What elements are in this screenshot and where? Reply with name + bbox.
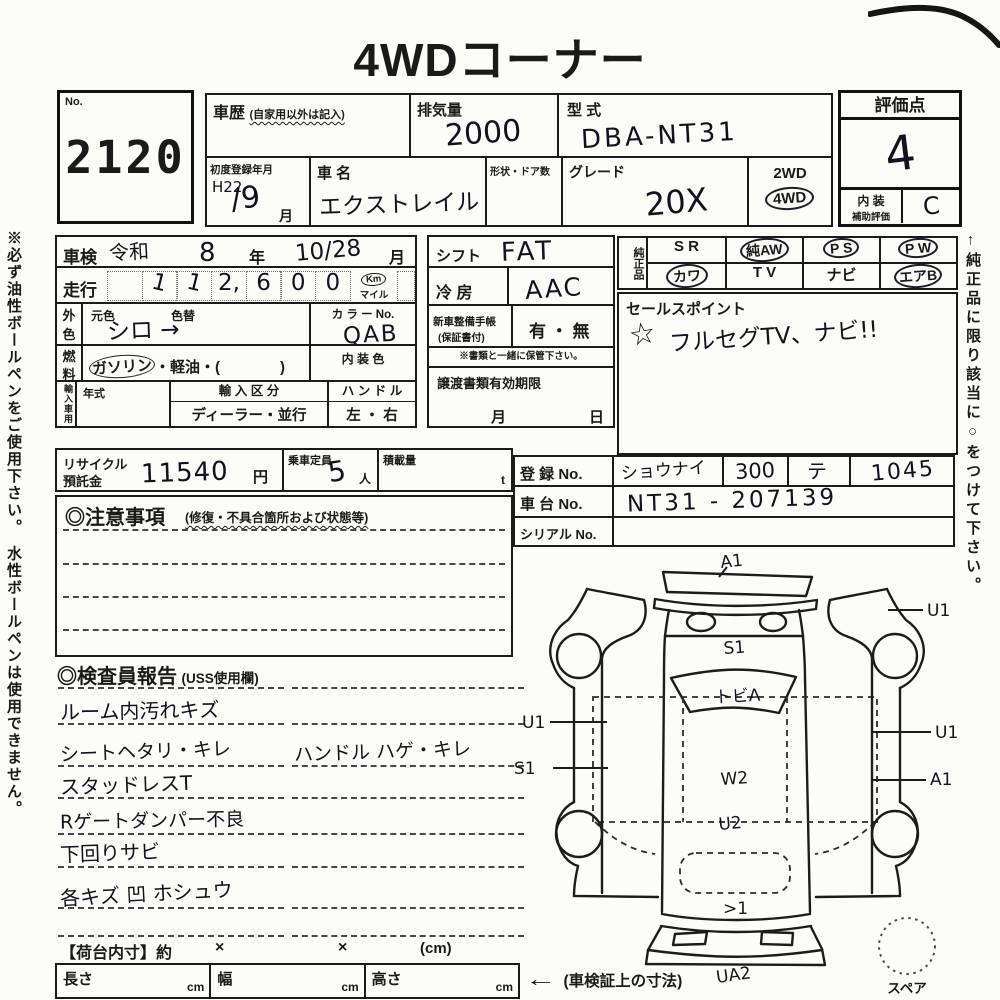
registration-row: 登 録 No. ショウナイ 300 テ 1045 [515, 457, 953, 487]
corner-scan-mark [868, 0, 1000, 52]
inspector-report-header: ◎検査員報告 (USS使用欄) [57, 660, 259, 689]
dims-table: 長さ cm 幅 cm 高さ cm [55, 963, 520, 999]
warranty-note: ※書類と一緒に保管下さい。 [429, 348, 613, 366]
fuel-label: 燃料 [57, 346, 83, 380]
transfer-box: 譲渡書類有効期限 月 日 [427, 366, 615, 428]
ac-label: 冷 房 [436, 279, 472, 303]
vehicle-history-cell: 車歴 (自家用以外は記入) [205, 93, 411, 158]
diagram-label-roof: W2 [720, 768, 749, 790]
spare-tire-circle [879, 918, 935, 974]
shift-label: シフト [436, 245, 481, 266]
seats-unit: 人 [359, 470, 371, 487]
mileage-digit: 0 [326, 272, 341, 295]
transfer-month: 月 [491, 406, 506, 427]
inspector-line [292, 909, 524, 937]
shaken-year-unit: 年 [249, 244, 265, 268]
diagram-label-left-door-lower: S1 [514, 759, 536, 779]
grade-cell: グレード 20X [561, 156, 749, 227]
inspector-left-column: ルーム内汚れキズ シートヘタリ・キレ スタッドレスT Rゲートダンパー不良 下回… [58, 687, 284, 937]
color-no-cell: カ ラ ー No. QAB [309, 304, 415, 344]
vehicle-history-label: 車歴 [213, 99, 245, 123]
left-margin-note: ※必ず油性ボールペンをご使用下さい。 水性ボールペンは使用できません。 [3, 230, 24, 1000]
car-name-cell: 車 名 エクストレイル [309, 156, 487, 227]
warranty-value: 有 ・ 無 [529, 317, 589, 342]
roof-dashed-outline [593, 697, 877, 893]
year-model-label: 年式 [83, 385, 105, 401]
shape-doors-label: 形状・ドア数 [490, 163, 550, 178]
import-row: 輸入車用 年式 輸 入 区 分 ディーラー・並行 ハ ン ド ル 左 ・ 右 [55, 380, 417, 428]
inspector-line: スタッドレスT [58, 767, 284, 799]
load-label: 積載量 [383, 452, 416, 468]
mileage-digit: 6 [256, 272, 271, 295]
genuine-item: 純AW [725, 238, 802, 264]
caution-line [63, 529, 505, 531]
length-cell: 長さ cm [57, 965, 209, 997]
shaken-year: 8 [199, 240, 216, 266]
sales-point-box: セールスポイント ☆ フルセグTV、ナビ!! [617, 292, 958, 455]
warranty-note-box: ※書類と一緒に保管下さい。 [427, 346, 615, 368]
fuel-other-options: ・軽油・( ) [155, 359, 285, 376]
evaluation-score: 4 [882, 128, 918, 179]
fuel-gasoline-circled: ガソリン [88, 353, 155, 381]
inspector-subtitle: (USS使用欄) [181, 671, 258, 686]
car-name-label: 車 名 [317, 162, 351, 183]
drive-4wd-circled: 4WD [765, 185, 816, 211]
inspector-line [58, 909, 284, 937]
cautions-subtitle: (修復・不具合箇所および状態等) [185, 507, 368, 526]
mileage-extra-cell [397, 271, 415, 301]
right-margin-note: ←純正品に限り該当に○をつけて下さい。 [962, 233, 983, 673]
vehicle-history-note: (自家用以外は記入) [249, 109, 344, 121]
inspector-line: ルーム内汚れキズ [58, 689, 284, 725]
handle-value: 左 ・ 右 [329, 402, 415, 425]
genuine-item: T V [725, 264, 802, 288]
evaluation-title: 評価点 [841, 93, 959, 120]
color-row: 外色 元色 色替 シロ → カ ラ ー No. QAB [55, 302, 417, 346]
recycle-value: 11540 [141, 458, 230, 487]
right-side-panel [816, 589, 924, 897]
car-name-value: エクストレイル [319, 191, 480, 220]
shaken-date: 10/28 [294, 237, 362, 266]
mileage-unit-mile: マイル [353, 287, 395, 301]
sales-point-star: ☆ [627, 318, 659, 352]
recycle-row: リサイクル 預託金 11540 円 乗車定員 5 人 積載量 t [55, 448, 513, 492]
mileage-units: Km マイル [353, 269, 395, 301]
inspector-title: ◎検査員報告 [57, 666, 177, 688]
recycle-yen-unit: 円 [253, 466, 268, 487]
mileage-digit: 0 [291, 272, 306, 295]
sales-point-value: フルセグTV、ナビ!! [668, 319, 878, 357]
handle-label: ハ ン ド ル [329, 382, 415, 402]
interior-color-cell: 内 装 色 [309, 346, 415, 380]
import-use-label: 輸入車用 [57, 382, 77, 426]
shaken-row: 車検 令和 8 年 10/28 月 [55, 235, 417, 268]
exterior-color-label: 外色 [57, 304, 83, 344]
grade-label: グレード [569, 162, 625, 182]
mileage-row: 走行 1 1 2, 6 0 0 Km マイル [55, 266, 417, 304]
lot-number-box: No. 2120 [57, 90, 194, 224]
interior-grade-label: 内 装 補助評価 [841, 190, 903, 223]
caution-line [63, 629, 505, 631]
genuine-item: エアB [879, 264, 956, 288]
inspector-line: 下回りサビ [58, 835, 284, 868]
cautions-title: ◎注意事項 [65, 501, 165, 530]
warranty-divider [511, 306, 513, 346]
diagram-label-right-fender: U1 [927, 601, 950, 621]
diagram-label-front: A1 [719, 551, 743, 573]
interior-color-label: 内 装 色 [311, 346, 415, 367]
displacement-cell: 排気量 2000 [409, 93, 559, 158]
genuine-item: P S [802, 238, 879, 264]
mileage-digit-cells: 1 1 2, 6 0 0 [107, 271, 351, 301]
shaken-label: 車検 [63, 243, 97, 268]
genuine-item: カワ [648, 264, 725, 288]
warranty-label2: (保証書付) [438, 329, 485, 344]
car-damage-diagram: A1 U1 S1 トビA U1 S1 U1 A1 W2 U2 >1 UA2 スペ… [495, 550, 965, 1000]
diagram-label-right-door-upper: U1 [935, 723, 958, 743]
inspector-line [292, 868, 524, 909]
genuine-parts-grid: 純正品 S R 純AW P S P W カワ T V ナビ エアB [617, 236, 958, 290]
first-registration-month-unit: 月 [279, 206, 293, 226]
mileage-unit-km-circled: Km [361, 272, 387, 287]
drive-2wd-option: 2WD [749, 165, 831, 182]
inspector-line: Rゲートダンパー不良 [58, 799, 284, 835]
first-registration-month: /9 [230, 183, 262, 216]
inspector-line [292, 689, 524, 725]
warranty-box: 新車整備手帳 (保証書付) 有 ・ 無 [427, 304, 615, 348]
chassis-value: NT31 - 207139 [627, 486, 838, 516]
inspector-line [292, 799, 524, 835]
diagram-label-left-door-upper: U1 [522, 713, 545, 733]
reg-class-value: 300 [734, 460, 775, 483]
first-registration-cell: 初度登録年月 H22 /9 月 [205, 156, 311, 227]
grade-value: 20X [644, 183, 709, 220]
first-registration-label: 初度登録年月 [210, 162, 273, 177]
shape-doors-cell: 形状・ドア数 [485, 156, 563, 227]
mileage-digit: 2, [218, 272, 240, 295]
mileage-digit: 1 [184, 271, 204, 297]
color-value: シロ → [107, 319, 180, 345]
import-class-label: 輸 入 区 分 [171, 382, 327, 402]
evaluation-box: 評価点 4 内 装 補助評価 C [838, 90, 962, 227]
spare-tire-label: スペア [887, 981, 927, 996]
diagram-label-hood: S1 [723, 638, 746, 659]
shift-box: シフト FAT [427, 235, 615, 268]
cargo-dims-times1: × [215, 939, 224, 957]
mileage-digit: 1 [150, 271, 170, 297]
import-class-value: ディーラー・並行 [171, 402, 327, 425]
interior-grade-value: C [922, 193, 941, 218]
fuel-row: 燃料 ガソリン・軽油・( ) 内 装 色 [55, 344, 417, 382]
diagram-label-rear-under: UA2 [715, 963, 752, 988]
displacement-value: 2000 [444, 116, 522, 151]
genuine-item: S R [648, 238, 725, 264]
lot-number: 2120 [60, 131, 191, 184]
model-code-cell: 型 式 DBA-NT31 [557, 93, 833, 158]
inspector-line: ハンドル ハゲ・キレ [292, 725, 524, 767]
diagram-label-cargo-floor: U2 [718, 813, 743, 835]
registration-box: 登 録 No. ショウナイ 300 テ 1045 車 台 No. NT31 - … [513, 455, 955, 547]
reg-area-value: ショウナイ [621, 460, 707, 483]
serial-row: シリアル No. [515, 518, 953, 546]
inspector-line [292, 835, 524, 868]
load-unit: t [501, 473, 505, 487]
inspector-right-column: ハンドル ハゲ・キレ [292, 687, 524, 937]
pointer-lines [550, 567, 931, 780]
cargo-dims-unit: (cm) [420, 940, 452, 957]
shaken-month-unit: 月 [389, 244, 405, 268]
reg-kana-value: テ [807, 461, 827, 481]
fuel-options: ガソリン・軽油・( ) [89, 355, 285, 378]
genuine-item: ナビ [802, 264, 879, 288]
width-cell: 幅 cm [209, 965, 363, 997]
diagram-label-right-door-lower: A1 [930, 770, 952, 790]
auction-sheet: 4WDコーナー No. 2120 車歴 (自家用以外は記入) 排気量 2000 … [0, 0, 1000, 1000]
inspector-line: シートヘタリ・キレ [58, 725, 284, 767]
diagram-label-windshield: トビA [714, 686, 761, 708]
cargo-dims-label: 【荷台内寸】約 [60, 939, 172, 963]
caution-line [63, 563, 505, 565]
serial-no-label: シリアル No. [520, 524, 596, 543]
lot-number-label: No. [65, 96, 83, 108]
model-code-label: 型 式 [567, 99, 601, 120]
diagram-label-rear-gate: >1 [723, 899, 748, 919]
genuine-item: P W [879, 238, 956, 264]
ac-value: AAC [524, 274, 584, 303]
page-title: 4WDコーナー [0, 24, 1000, 90]
inspector-line: 各キズ 凹 ホシュウ [58, 868, 284, 909]
genuine-parts-label: 純正品 [619, 238, 648, 288]
shaken-era: 令和 [109, 241, 150, 263]
reg-number-value: 1045 [870, 458, 936, 485]
seats-value: 5 [326, 457, 348, 487]
ac-divider [507, 268, 509, 304]
transfer-day: 日 [589, 406, 604, 427]
recycle-label2: 預託金 [63, 471, 102, 490]
chassis-no-label: 車 台 No. [520, 493, 583, 514]
chassis-row: 車 台 No. NT31 - 207139 [515, 487, 953, 518]
model-code-value: DBA-NT31 [580, 119, 738, 153]
reg-no-label: 登 録 No. [520, 463, 583, 484]
inspector-line [292, 767, 524, 799]
transfer-label: 譲渡書類有効期限 [437, 373, 541, 392]
import-class-col: 輸 入 区 分 ディーラー・並行 [169, 382, 327, 426]
mileage-label: 走行 [63, 276, 97, 301]
warranty-label: 新車整備手帳 [433, 314, 496, 329]
cargo-dims-times2: × [338, 939, 347, 957]
load-cell: 積載量 t [377, 450, 511, 490]
ac-box: 冷 房 AAC [427, 266, 615, 306]
shift-value: FAT [501, 238, 555, 266]
handle-col: ハ ン ド ル 左 ・ 右 [327, 382, 415, 426]
cautions-box: ◎注意事項 (修復・不具合箇所および状態等) [55, 495, 513, 657]
drive-type-cell: 2WD 4WD [747, 156, 833, 227]
seats-cell: 乗車定員 5 人 [282, 450, 377, 490]
caution-line [63, 596, 505, 598]
color-no-label: カ ラ ー No. [311, 304, 415, 322]
